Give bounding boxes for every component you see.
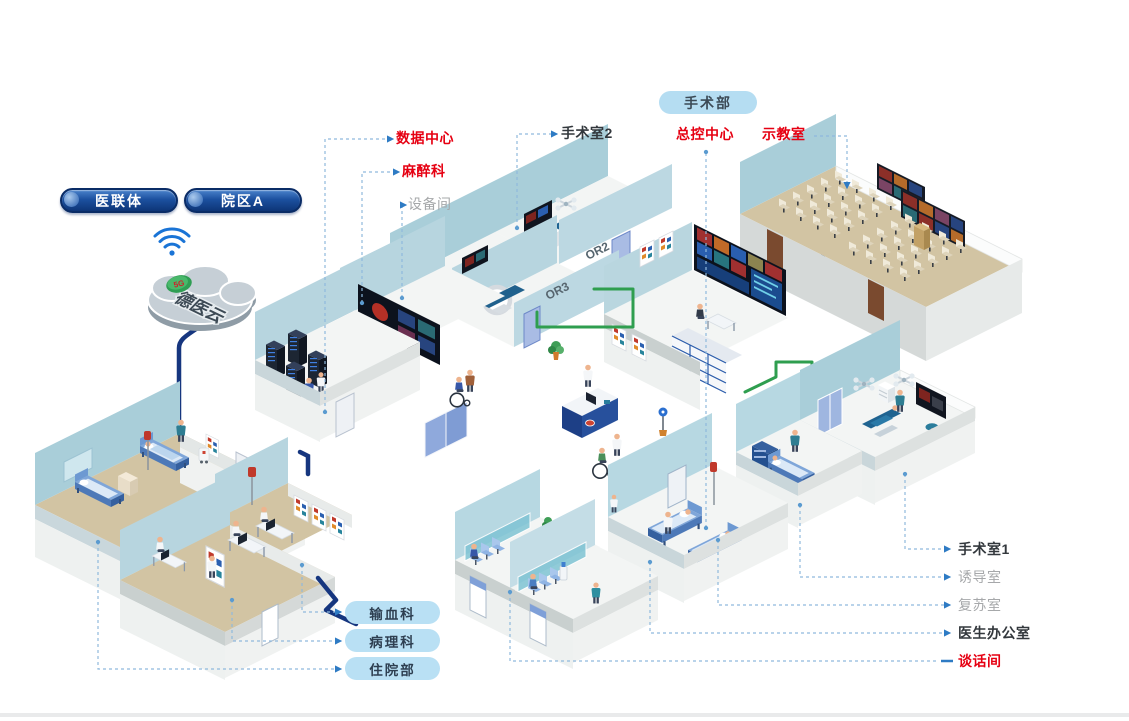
callout-anesthesia: 麻醉科 [402, 164, 446, 179]
callout-doctor-office: 医生办公室 [958, 626, 1031, 641]
pill-campus-a: 院区A [184, 188, 302, 213]
demo-podium [914, 223, 930, 250]
cloud-platform: 德医云 5G [148, 229, 256, 331]
pill-blood-transfusion-label: 输血科 [369, 603, 416, 623]
pill-pathology: 病理科 [345, 629, 440, 652]
callout-talk-room: 谈话间 [958, 654, 1002, 669]
plant [548, 341, 564, 360]
wifi-icon [155, 229, 189, 256]
reception-desk [562, 388, 618, 438]
pill-medical-alliance-label: 医联体 [95, 191, 143, 211]
demo-room [740, 114, 1022, 361]
pill-inpatient-label: 住院部 [369, 659, 416, 679]
pill-campus-a-label: 院区A [221, 191, 265, 211]
callout-demo-room: 示教室 [762, 127, 806, 142]
hospital-isometric-diagram: OR2 OR3 [0, 0, 1129, 721]
line-induction [800, 505, 950, 577]
callout-or1: 手术室1 [958, 542, 1010, 557]
callout-or2: 手术室2 [561, 126, 613, 141]
pill-medical-alliance: 医联体 [60, 188, 178, 213]
pathology-door [262, 604, 278, 646]
callout-data-center: 数据中心 [396, 131, 454, 146]
cable-segment [300, 452, 308, 474]
med-robot [199, 448, 209, 464]
bottom-divider [0, 713, 1129, 717]
corridor-sliding-door [425, 402, 467, 458]
callout-induction: 诱导室 [958, 570, 1002, 585]
wheelchair-patient-1 [450, 370, 475, 407]
cloud-icon: 德医云 5G [148, 266, 256, 331]
pill-pathology-label: 病理科 [369, 631, 416, 651]
callout-recovery: 复苏室 [958, 598, 1002, 613]
hall-fan [659, 408, 668, 437]
pill-surgery-department: 手术部 [659, 91, 757, 114]
pill-inpatient: 住院部 [345, 657, 440, 680]
callout-equipment: 设备间 [408, 197, 452, 212]
callout-control-center: 总控中心 [676, 127, 734, 142]
line-or1 [905, 474, 950, 549]
pill-blood-transfusion: 输血科 [345, 601, 440, 624]
pill-surgery-department-label: 手术部 [684, 93, 732, 113]
